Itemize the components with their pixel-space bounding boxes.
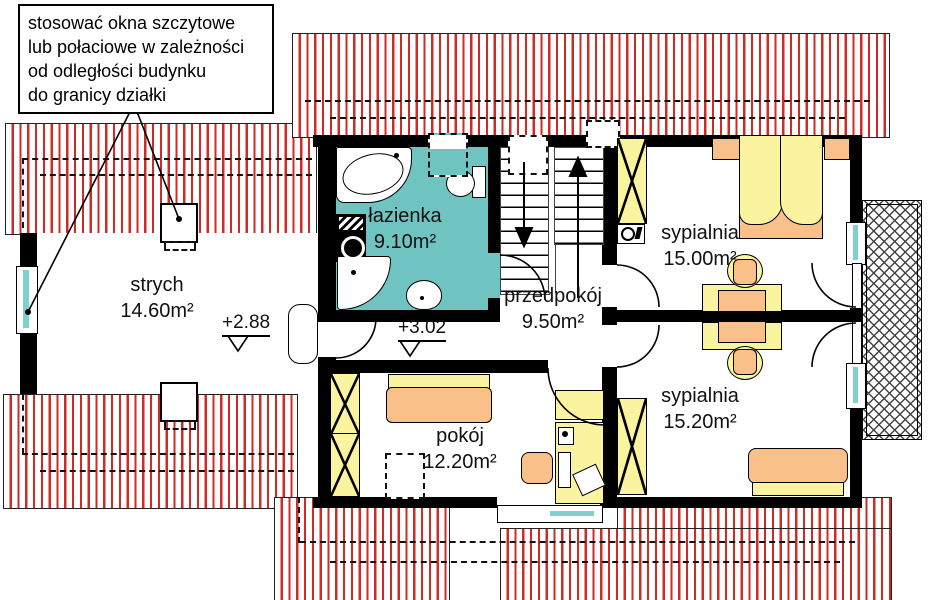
room-name: sypialnia	[625, 383, 775, 409]
room-label-przedpokoj: przedpokój 9.50m²	[478, 283, 628, 335]
roof-eave-dash	[22, 158, 24, 228]
sofa-bedroom2	[748, 448, 848, 484]
wall-attic-left-lower	[20, 332, 37, 394]
wall-pokoj-top	[336, 360, 548, 373]
roof-bottom-right	[500, 528, 892, 600]
room-label-lazienka: łazienka 9.10m²	[330, 203, 480, 255]
wall-bath-right	[488, 147, 500, 253]
wardrobe	[617, 138, 647, 224]
attic-step	[288, 304, 318, 364]
stairs-right-flight	[554, 147, 604, 245]
balcony	[862, 200, 922, 440]
roof-eave-dash	[22, 453, 294, 455]
wardrobe-pokoj-upper	[330, 373, 360, 435]
desk-gadget-knob	[562, 431, 568, 437]
room-area: 9.10m²	[330, 229, 480, 255]
chimney-marker	[586, 120, 620, 148]
roof-window-marker-dash	[164, 241, 196, 251]
floor-plan: strych 14.60m² łazienka 9.10m² przedpokó…	[0, 0, 928, 600]
sofa-bedroom2-front	[752, 482, 844, 496]
level-marker-hall: +3.02	[398, 317, 446, 342]
level-marker-attic: +2.88	[222, 312, 270, 337]
nightstand-left	[712, 138, 740, 160]
bathroom-skylight-marker	[428, 133, 468, 177]
roof-window-marker-dash	[164, 420, 196, 430]
room-area: 9.50m²	[478, 309, 628, 335]
roof-eave-dash	[298, 497, 300, 543]
annotation-line: od odległości budynku	[28, 59, 264, 83]
balcony-door-2-leaf	[852, 321, 862, 365]
bathtub-tap	[394, 153, 399, 158]
room-area: 15.00m²	[625, 246, 775, 272]
roof-eave-dash	[40, 470, 294, 472]
room-label-strych: strych 14.60m²	[77, 272, 237, 324]
duvet-left	[739, 135, 783, 225]
stairs-opening-marker	[508, 135, 548, 175]
sofa-pokoj-seat	[386, 387, 492, 423]
roof-eave-dash	[330, 117, 845, 119]
gable-window-glass	[23, 270, 29, 328]
desk-lower-inset	[718, 322, 766, 343]
roof-window-marker	[160, 203, 198, 243]
room-name: sypialnia	[625, 220, 775, 246]
wall-bedrooms-left-lower	[602, 367, 617, 497]
annotation-line: stosować okna szczytowe	[28, 11, 264, 35]
wall-right-lower	[850, 407, 862, 508]
room-area: 14.60m²	[77, 298, 237, 324]
wardrobe-pokoj-lower	[330, 433, 360, 497]
room-label-sypialnia1: sypialnia 15.00m²	[625, 220, 775, 272]
wall-bedrooms-left-upper	[602, 135, 617, 265]
desk-monitor	[558, 452, 571, 488]
pokoj-window-glass	[550, 511, 594, 516]
balcony-door-1-leaf	[852, 263, 862, 309]
roof-eave-dash	[22, 158, 312, 160]
room-name: łazienka	[330, 203, 480, 229]
room-name: strych	[77, 272, 237, 298]
roof-eave-dash	[22, 394, 24, 454]
desk-upper-inset	[718, 290, 766, 311]
roof-eave-dash	[305, 100, 870, 102]
nightstand-right	[824, 138, 850, 160]
wall-bottom-right-segment	[600, 497, 862, 508]
room-area: 12.20m²	[385, 449, 535, 475]
roof-window-marker	[160, 382, 198, 422]
room-label-sypialnia2: sypialnia 15.20m²	[625, 383, 775, 435]
annotation-line: do granicy działki	[28, 83, 264, 107]
roof-eave-dash	[40, 174, 312, 176]
room-name: przedpokój	[478, 283, 628, 309]
wall-attic-left-upper	[20, 233, 37, 268]
washbasin-drain	[420, 296, 424, 300]
room-label-pokoj: pokój 12.20m²	[385, 423, 535, 475]
annotation-note: stosować okna szczytowe lub połaciowe w …	[18, 4, 274, 114]
roof-eave-dash	[330, 561, 840, 563]
wall-right-middle	[850, 308, 862, 322]
balcony-door-2-glass	[853, 367, 858, 403]
roof-bottom-left	[3, 394, 298, 509]
chair-lower-seat	[733, 349, 757, 375]
annotation-line: lub połaciowe w zależności	[28, 35, 264, 59]
room-area: 15.20m²	[625, 409, 775, 435]
balcony-door-1-glass	[853, 225, 858, 260]
roof-eave-dash	[300, 541, 855, 543]
shelf-pokoj	[555, 390, 604, 420]
shower-drain	[351, 270, 356, 275]
duvet-right	[780, 135, 823, 225]
wall-right-upper	[850, 135, 862, 222]
roof-bottom-middle	[274, 497, 450, 600]
room-name: pokój	[385, 423, 535, 449]
washbasin	[406, 280, 442, 310]
